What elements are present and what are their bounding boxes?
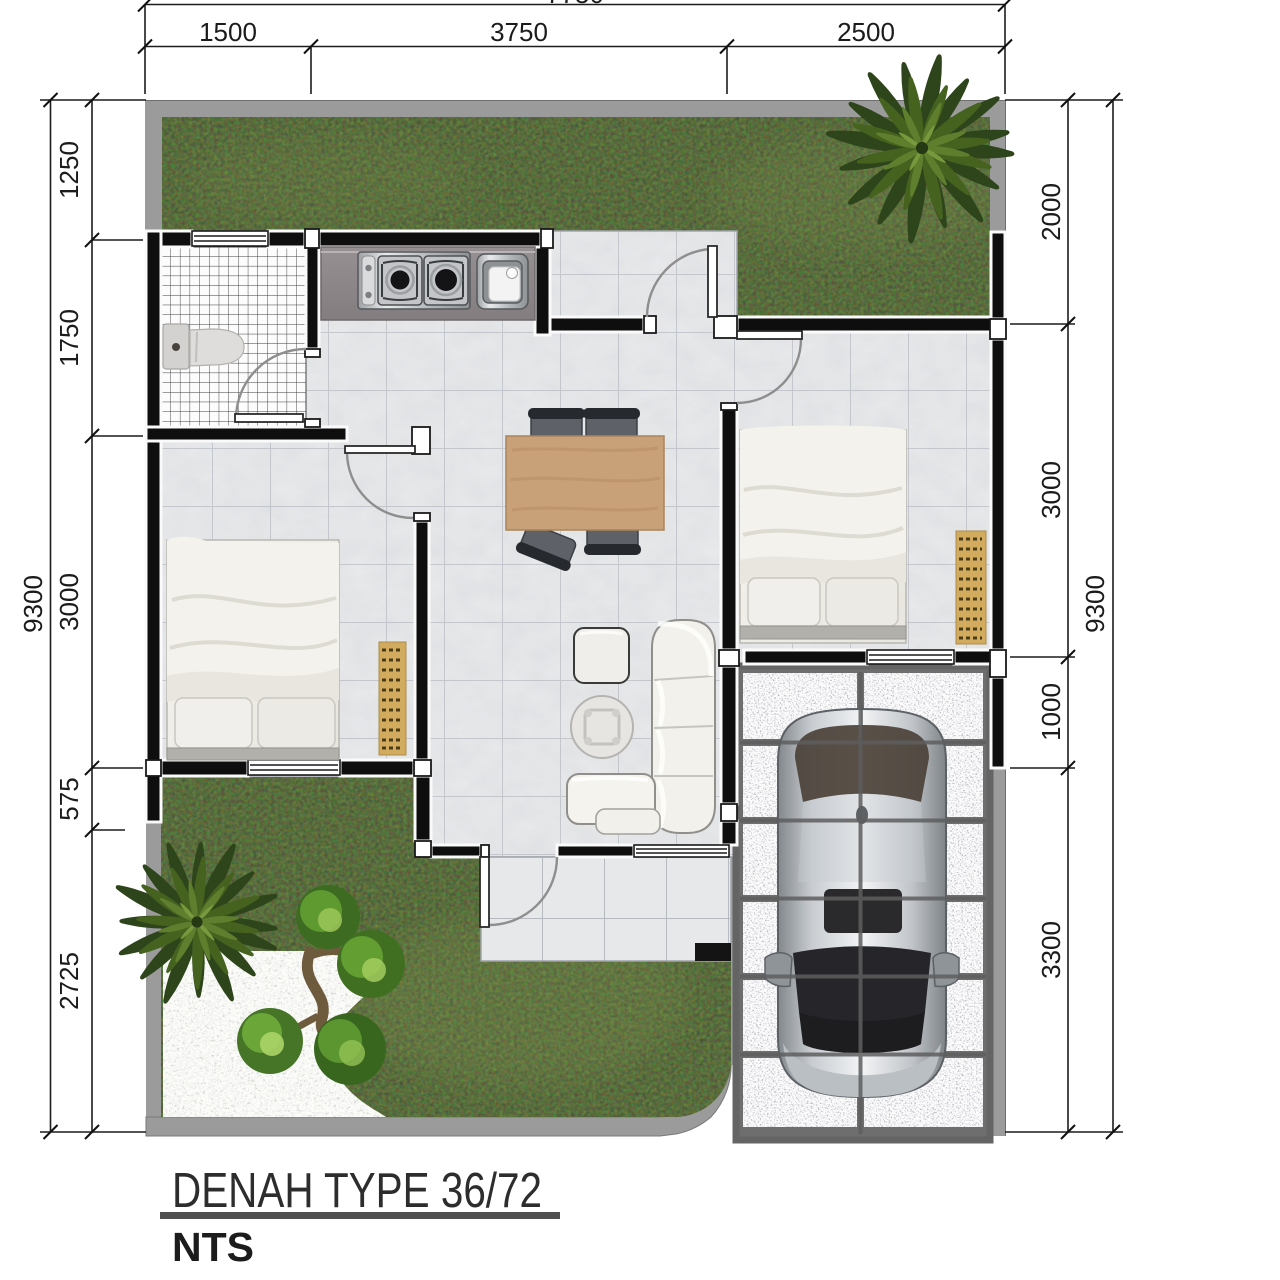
svg-text:7750: 7750 (546, 0, 604, 9)
svg-text:DENAH TYPE 36/72: DENAH TYPE 36/72 (172, 1164, 542, 1218)
svg-text:9300: 9300 (1080, 575, 1110, 633)
svg-text:2000: 2000 (1036, 183, 1066, 241)
svg-text:1250: 1250 (54, 141, 84, 199)
svg-text:3000: 3000 (54, 573, 84, 631)
svg-text:3300: 3300 (1036, 921, 1066, 979)
svg-text:575: 575 (54, 777, 84, 820)
svg-text:2725: 2725 (54, 952, 84, 1010)
svg-text:1000: 1000 (1036, 683, 1066, 741)
svg-text:1750: 1750 (54, 309, 84, 367)
svg-text:9300: 9300 (18, 575, 48, 633)
svg-text:3750: 3750 (490, 17, 548, 47)
svg-text:NTS: NTS (172, 1224, 254, 1270)
svg-text:3000: 3000 (1036, 461, 1066, 519)
svg-text:1500: 1500 (199, 17, 257, 47)
svg-text:2500: 2500 (837, 17, 895, 47)
